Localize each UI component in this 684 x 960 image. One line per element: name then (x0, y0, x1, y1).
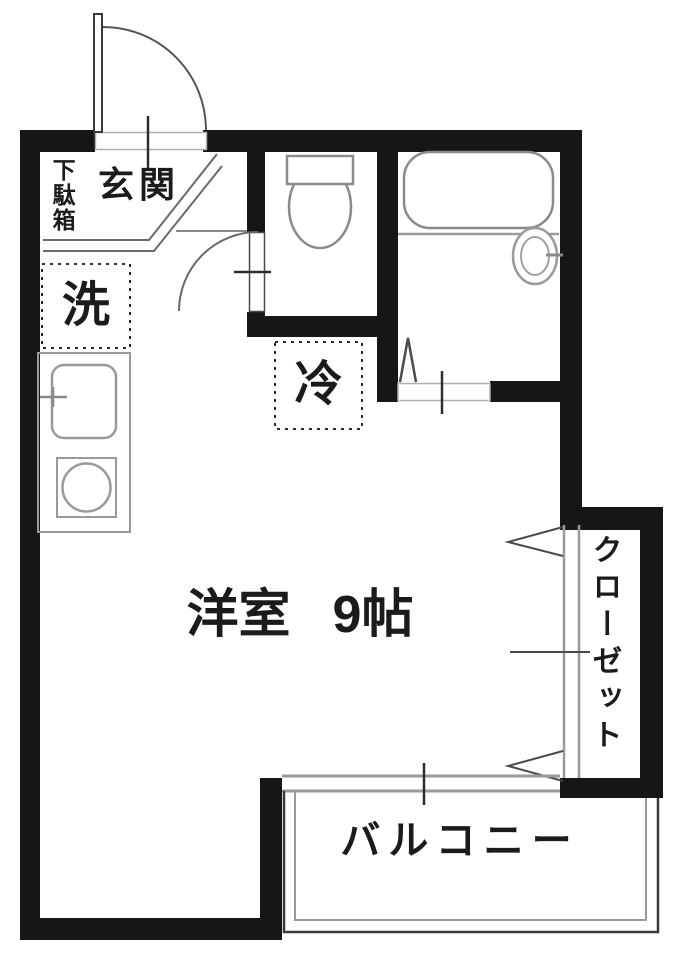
floorplan: 玄関 下駄箱 洗 冷 洋室 9帖 クローゼット バルコニー (0, 0, 684, 960)
wall-balcony-divider (260, 778, 282, 940)
wall-closet-bottom (560, 778, 663, 798)
shoe-cabinet-label: 下駄箱 (50, 158, 74, 233)
bathtub-icon (404, 152, 553, 228)
wall-bathroom-bottom (490, 381, 582, 402)
wall-closet-right (640, 507, 663, 798)
stove-burner-icon (63, 464, 111, 512)
western-room-size: 9帖 (333, 588, 414, 643)
entrance-label: 玄関 (98, 166, 180, 204)
refrigerator-space-label: 冷 (275, 342, 362, 429)
wall-right-upper (560, 130, 582, 530)
balcony-label: バルコニー (290, 820, 630, 862)
closet-label: クローゼット (588, 534, 620, 756)
entrance-door-arc-icon (103, 27, 206, 130)
laundry-space-label: 洗 (42, 264, 130, 348)
floorplan-linework (0, 0, 684, 960)
stove-box (57, 458, 116, 517)
western-room-label: 洋室 9帖 (160, 582, 440, 648)
folding-door-icon (400, 338, 416, 382)
toilet-tank-icon (287, 156, 353, 184)
entrance-door-leaf (94, 14, 102, 132)
wall-toilet-left-upper (247, 152, 265, 232)
wall-toilet-bottom (247, 316, 377, 337)
western-room-name: 洋室 (187, 588, 291, 643)
entrance-doorway (96, 133, 207, 150)
bathroom-doorway (398, 384, 490, 401)
closet-door-swing-top-icon (508, 527, 563, 556)
wall-left (20, 130, 40, 940)
wall-bottom-left (20, 918, 282, 940)
wall-center-vertical (377, 130, 398, 402)
kitchen-sink-icon (52, 365, 116, 438)
